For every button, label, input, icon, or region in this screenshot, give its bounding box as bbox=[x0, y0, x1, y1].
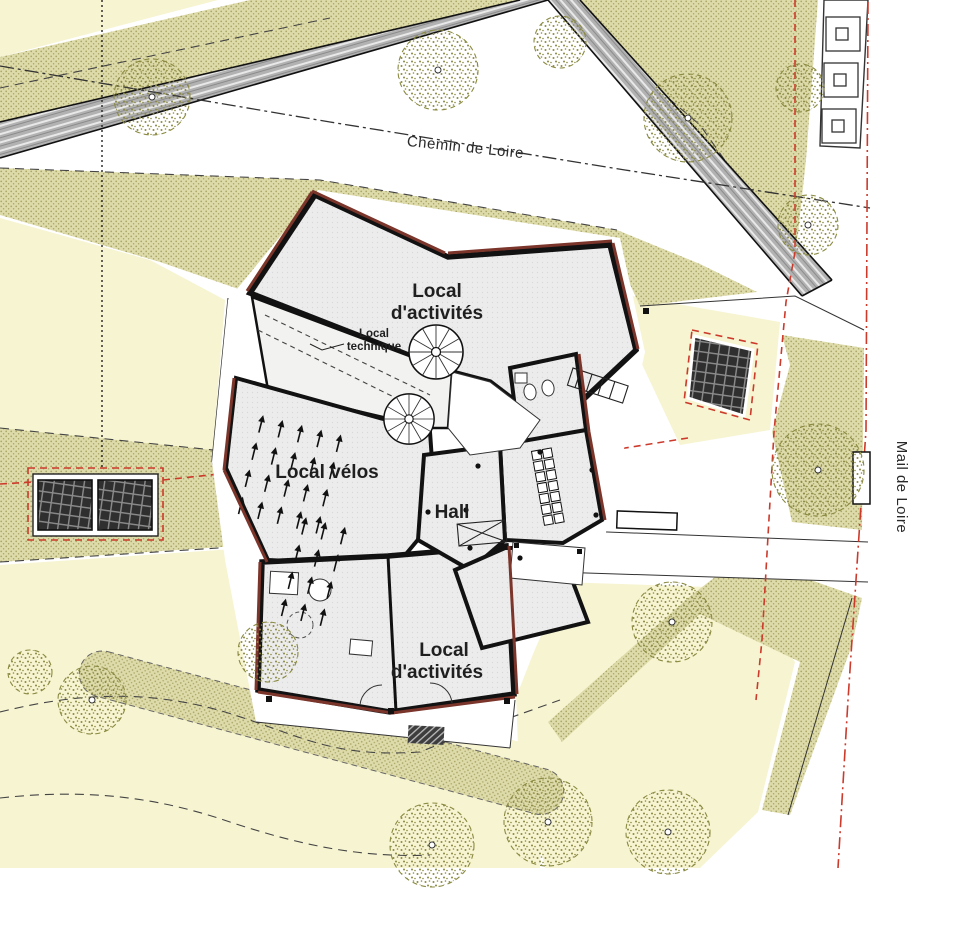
label-local-activites-south-2: d'activités bbox=[391, 662, 483, 683]
tree-icon bbox=[58, 666, 126, 734]
label-local-activites-south-1: Local bbox=[419, 640, 469, 661]
bench bbox=[617, 511, 678, 530]
site-plan-drawing: Chemin de Loire Mail de Loire Local d'ac… bbox=[0, 0, 960, 951]
label-local-velos: Local vélos bbox=[275, 462, 379, 483]
doormat bbox=[408, 725, 445, 745]
entry-porch bbox=[510, 542, 585, 585]
tree-icon bbox=[776, 64, 824, 112]
tree-icon bbox=[772, 424, 864, 516]
colonnade-strip bbox=[820, 0, 868, 148]
tree-icon bbox=[238, 622, 298, 682]
tree-icon bbox=[114, 59, 190, 135]
street-label-chemin-de-loire: Chemin de Loire bbox=[406, 133, 525, 162]
tree-icon bbox=[8, 650, 52, 694]
tree-icon bbox=[390, 803, 474, 887]
tree-icon bbox=[504, 778, 592, 866]
tree-icon bbox=[778, 195, 838, 255]
spiral-stair-icon bbox=[409, 325, 463, 379]
tree-icon bbox=[644, 74, 732, 162]
tree-icon bbox=[534, 16, 586, 68]
tree-icon bbox=[398, 30, 478, 110]
label-local-technique-2: technique bbox=[347, 341, 401, 353]
label-local-activites-north-2: d'activités bbox=[391, 303, 483, 324]
label-local-activites-north-1: Local bbox=[412, 281, 462, 302]
spiral-stair-icon bbox=[384, 394, 434, 444]
site-plan-page: Chemin de Loire Mail de Loire Local d'ac… bbox=[0, 0, 960, 951]
label-hall: Hall bbox=[435, 502, 470, 523]
bins-shelter-west bbox=[33, 474, 158, 536]
street-label-mail-de-loire: Mail de Loire bbox=[893, 441, 910, 533]
label-local-technique-1: Local bbox=[359, 328, 389, 340]
tree-icon bbox=[632, 582, 712, 662]
tree-icon bbox=[626, 790, 710, 874]
